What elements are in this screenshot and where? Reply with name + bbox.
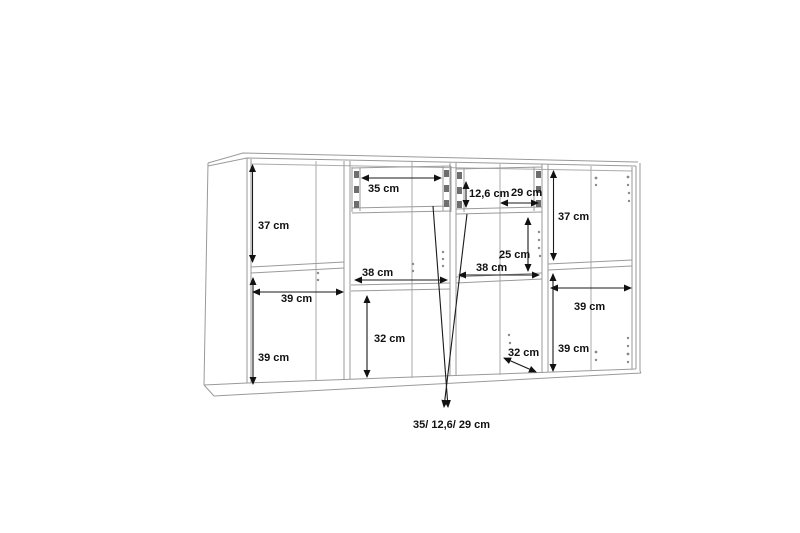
dim-label: 39 cm	[281, 293, 312, 305]
dim-label: 39 cm	[574, 301, 605, 313]
dim-label: 39 cm	[558, 343, 589, 355]
dim-label: 37 cm	[258, 220, 289, 232]
dim-label: 32 cm	[508, 347, 539, 359]
dim-mid-left-width: 38 cm	[355, 267, 447, 280]
drawer-left	[352, 166, 451, 213]
dim-drawer-left-width: 35 cm	[362, 178, 441, 195]
dim-label: 35 cm	[368, 183, 399, 195]
dim-label: 25 cm	[499, 249, 530, 261]
shelves	[251, 260, 632, 291]
dim-mid-right-width: 38 cm	[459, 262, 539, 275]
dim-left-upper-height: 37 cm	[253, 165, 290, 262]
diagram-canvas: 37 cm 39 cm 39 cm 35 cm 38 cm 32 cm 12,6…	[0, 0, 800, 533]
dim-label: 37 cm	[558, 211, 589, 223]
back-panel-seams	[316, 161, 591, 381]
dim-mid-left-height: 32 cm	[367, 296, 405, 377]
dim-depth: 32 cm	[504, 347, 539, 372]
dim-drawer-summary-callout: 35/ 12,6/ 29 cm	[413, 206, 490, 431]
dim-right-upper-height: 37 cm	[554, 171, 590, 260]
dim-label: 35/ 12,6/ 29 cm	[413, 419, 490, 431]
dim-label: 39 cm	[258, 352, 289, 364]
furniture-dimension-diagram: 37 cm 39 cm 39 cm 35 cm 38 cm 32 cm 12,6…	[0, 0, 800, 533]
dim-label: 38 cm	[362, 267, 393, 279]
dim-label: 12,6 cm	[469, 188, 510, 200]
dim-label: 32 cm	[374, 333, 405, 345]
dim-label: 29 cm	[511, 187, 542, 199]
dim-left-width: 39 cm	[253, 292, 343, 305]
dim-label: 38 cm	[476, 262, 507, 274]
